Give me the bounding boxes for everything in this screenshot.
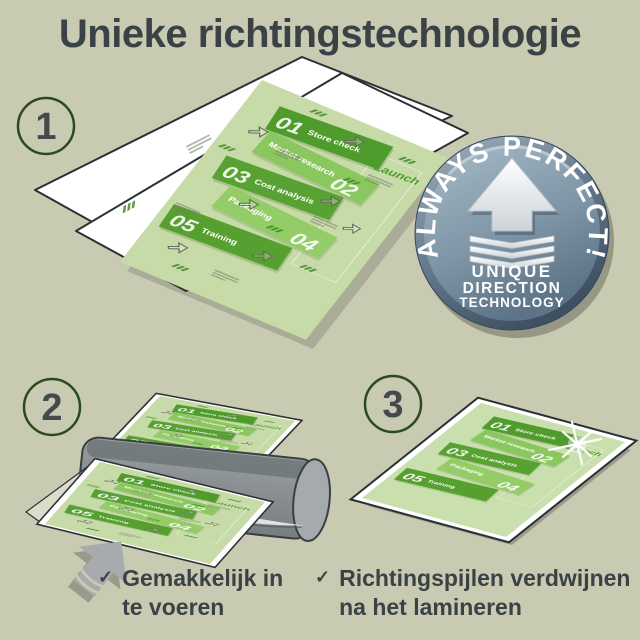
infographic: Unieke richtingstechnologie (0, 0, 640, 640)
step-circle-3: 3 (365, 376, 421, 432)
badge-line-unique: UNIQUE (471, 262, 552, 281)
caption-arrows-disappear: ✓ Richtingspijlen verdwijnen na het lami… (315, 564, 640, 623)
checkmark-icon: ✓ (98, 566, 113, 623)
checkmark-icon: ✓ (315, 566, 330, 623)
step-circle-2: 2 (24, 379, 80, 435)
step-circle-1: 1 (18, 98, 74, 154)
caption-text: Richtingspijlen verdwijnen na het lamine… (339, 564, 640, 623)
badge-line-technology: TECHNOLOGY (459, 295, 564, 310)
step-number-1: 1 (35, 106, 56, 148)
step-number-2: 2 (41, 387, 62, 429)
illustration-canvas: 01 Store check Market research 02 03 Cos… (0, 0, 640, 640)
caption-easy-feed: ✓ Gemakkelijk in te voeren (98, 564, 293, 623)
step1-illustration (35, 57, 468, 349)
step-number-3: 3 (382, 384, 403, 426)
caption-text: Gemakkelijk in te voeren (122, 564, 293, 623)
